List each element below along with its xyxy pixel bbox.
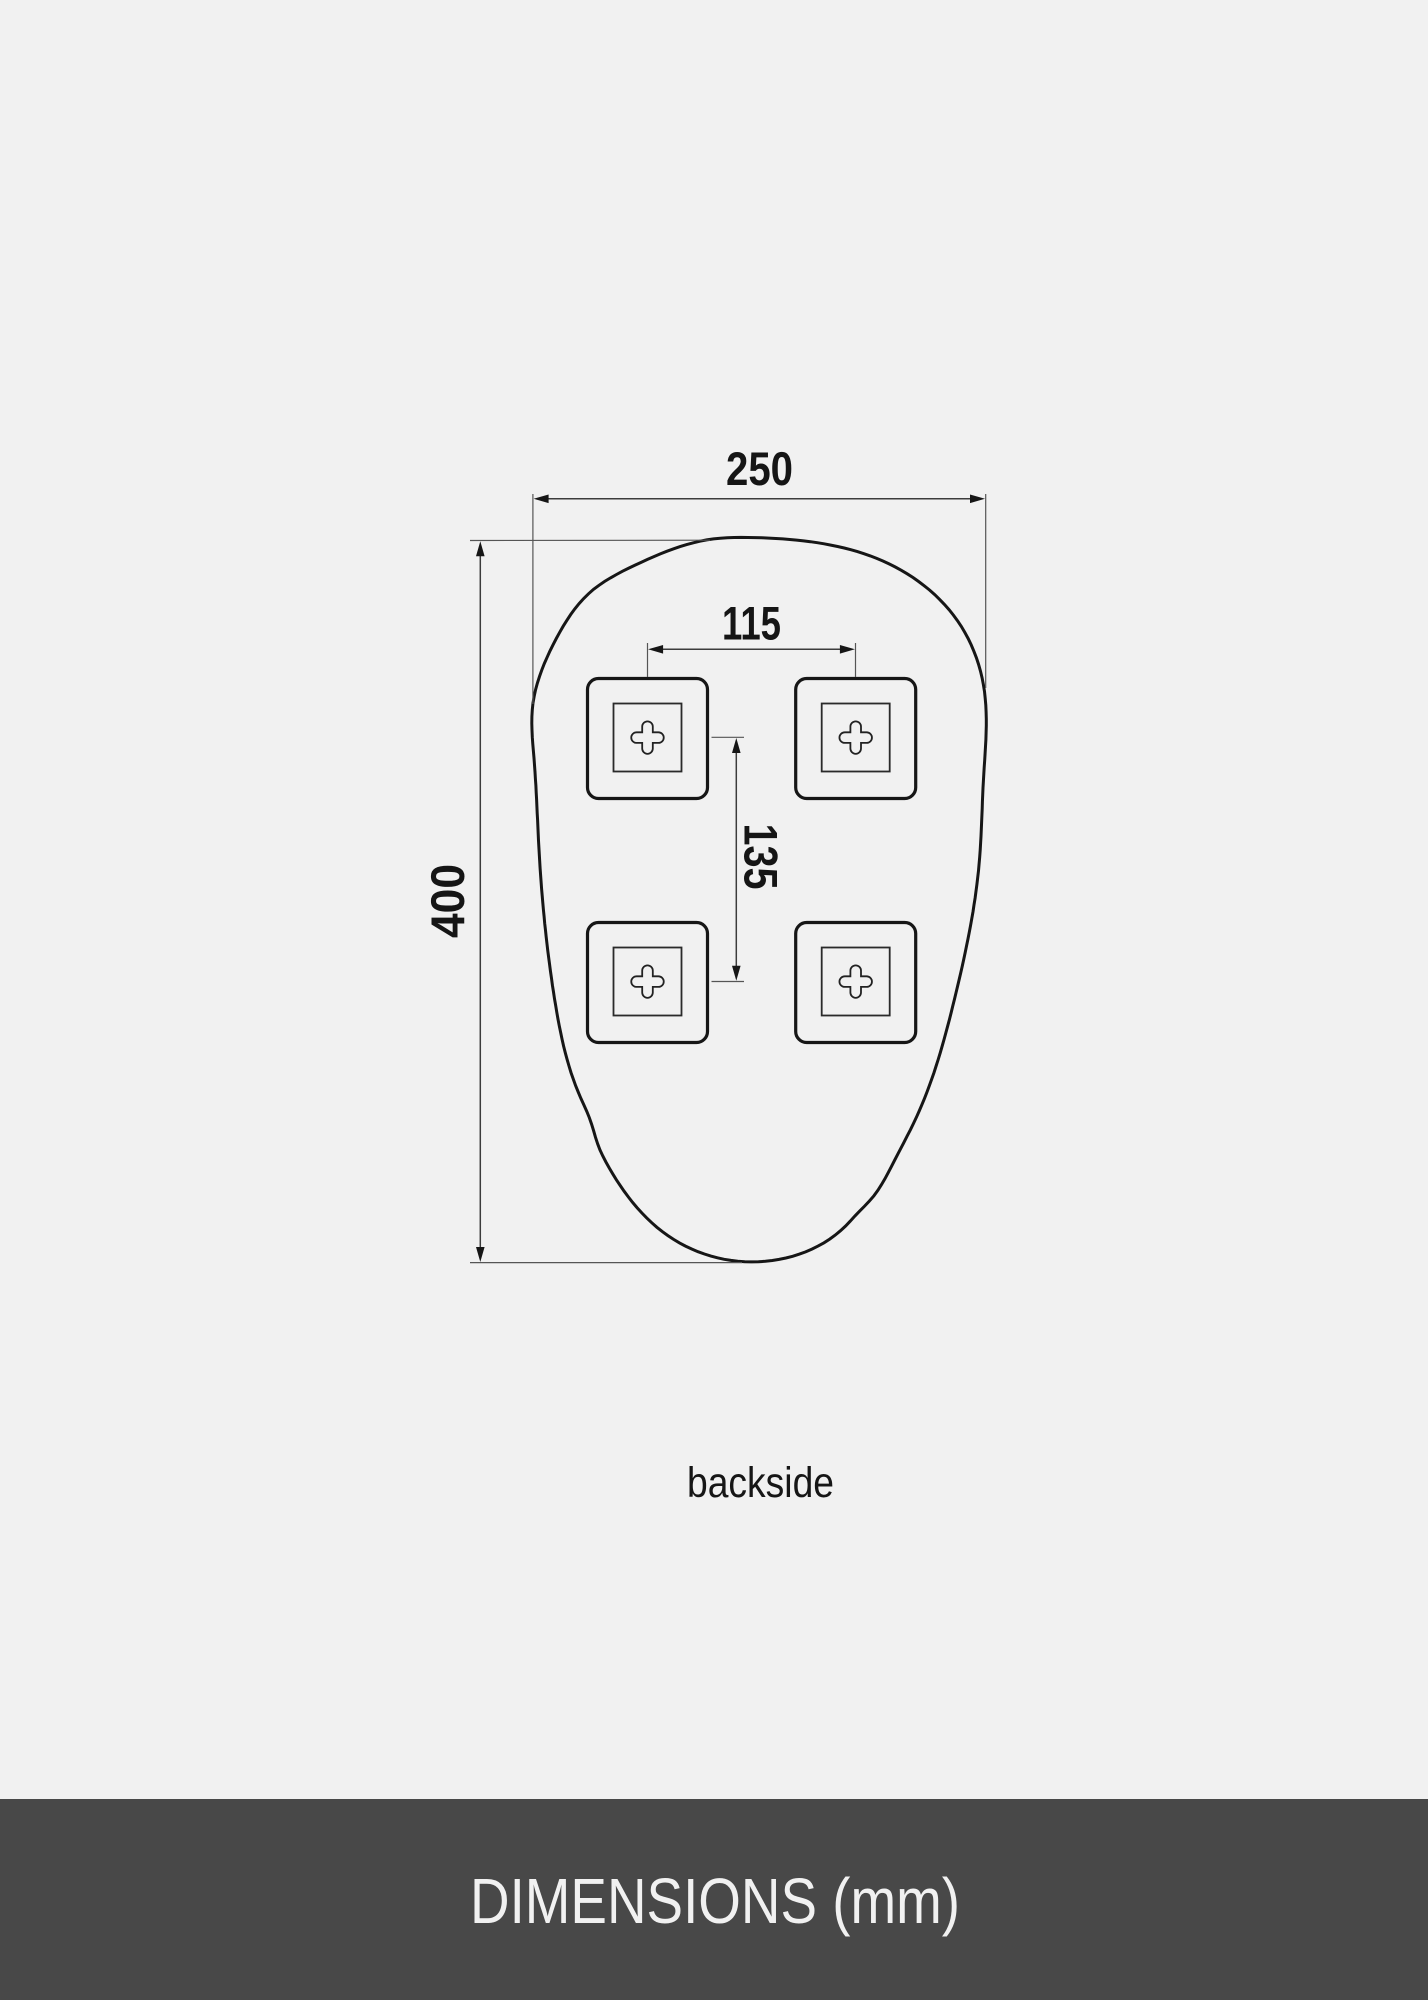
svg-text:backside: backside bbox=[687, 1459, 834, 1507]
svg-text:115: 115 bbox=[722, 597, 781, 650]
svg-text:DIMENSIONS (mm): DIMENSIONS (mm) bbox=[470, 1865, 960, 1937]
svg-text:400: 400 bbox=[421, 864, 474, 938]
svg-text:135: 135 bbox=[735, 824, 788, 890]
svg-text:250: 250 bbox=[726, 442, 793, 495]
